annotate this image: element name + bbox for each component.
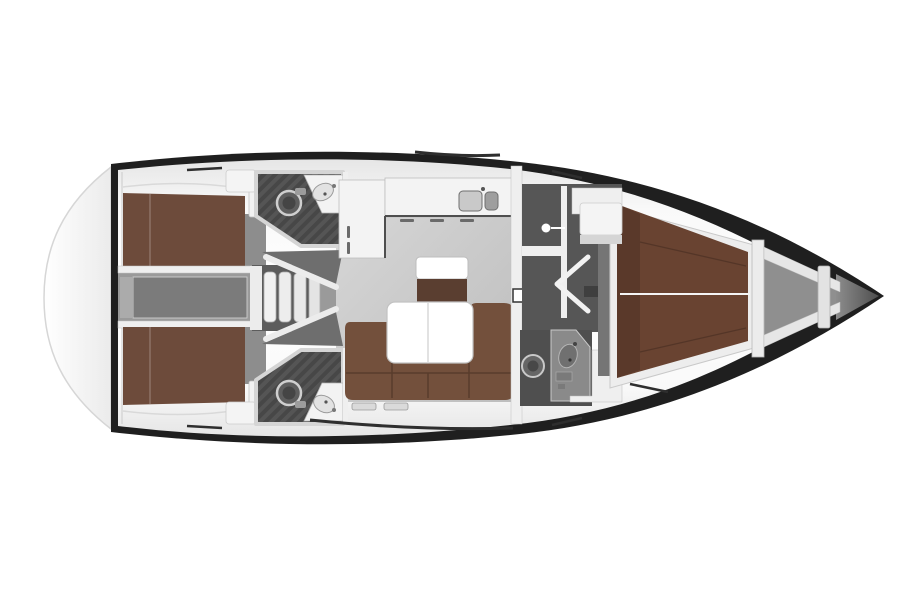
step-2 xyxy=(279,272,291,322)
galley-counter-vertical xyxy=(339,180,385,258)
faucet-port xyxy=(332,184,336,188)
toilet-port-bowl xyxy=(283,197,296,210)
corridor-wall-top xyxy=(118,266,254,273)
toilet-starboard-tank xyxy=(295,401,306,408)
head-forward-drain xyxy=(568,358,571,361)
anchor-beam-small xyxy=(818,266,830,328)
vberth-side-block-edge xyxy=(580,235,622,244)
door-notch xyxy=(584,286,600,297)
chart-cabinet-body xyxy=(417,279,467,302)
yacht-layout-diagram xyxy=(0,0,900,600)
sink-drain-port xyxy=(323,192,326,195)
drawer-handle-3 xyxy=(460,219,474,222)
faucet-starboard xyxy=(332,408,336,412)
deck-block-port xyxy=(226,170,256,192)
vberth-side-block xyxy=(580,203,622,235)
locker-handle-1 xyxy=(352,403,376,410)
anchor-beam-main xyxy=(752,240,764,357)
drawer-handle-5 xyxy=(347,242,350,254)
galley-sink-left xyxy=(459,191,482,211)
locker-handle-2 xyxy=(384,403,408,410)
head-forward-locker xyxy=(556,372,572,381)
galley-sink-right xyxy=(485,192,498,210)
toilet-forward-bowl xyxy=(528,361,539,372)
table-top xyxy=(387,302,473,363)
berth-port xyxy=(123,193,245,271)
chart-cabinet xyxy=(416,257,468,302)
wardrobe-knob xyxy=(542,224,551,233)
head-forward-faucet xyxy=(573,342,577,346)
wardrobe-band xyxy=(522,246,562,256)
step-3 xyxy=(294,273,306,322)
berth-starboard xyxy=(123,327,245,405)
engine-left-panel xyxy=(120,277,133,318)
steps-jamb xyxy=(250,266,262,330)
deck-block-starboard xyxy=(226,402,256,424)
drawer-handle-2 xyxy=(430,219,444,222)
salon-table xyxy=(387,302,473,363)
drawer-handle-1 xyxy=(400,219,414,222)
engine-compartment xyxy=(118,266,254,328)
swim-platform xyxy=(44,167,111,429)
toilet-port-tank xyxy=(295,188,306,195)
floor-plan-canvas xyxy=(0,0,900,600)
corridor-wall-bottom xyxy=(118,321,254,328)
chart-cabinet-top xyxy=(416,257,468,279)
drawer-handle-4 xyxy=(347,226,350,238)
toilet-starboard-bowl xyxy=(283,387,296,400)
step-1 xyxy=(264,272,276,322)
engine-box xyxy=(133,277,247,318)
galley-faucet xyxy=(481,187,485,191)
head-forward-locker-2 xyxy=(558,384,565,389)
sink-drain-starboard xyxy=(324,400,327,403)
